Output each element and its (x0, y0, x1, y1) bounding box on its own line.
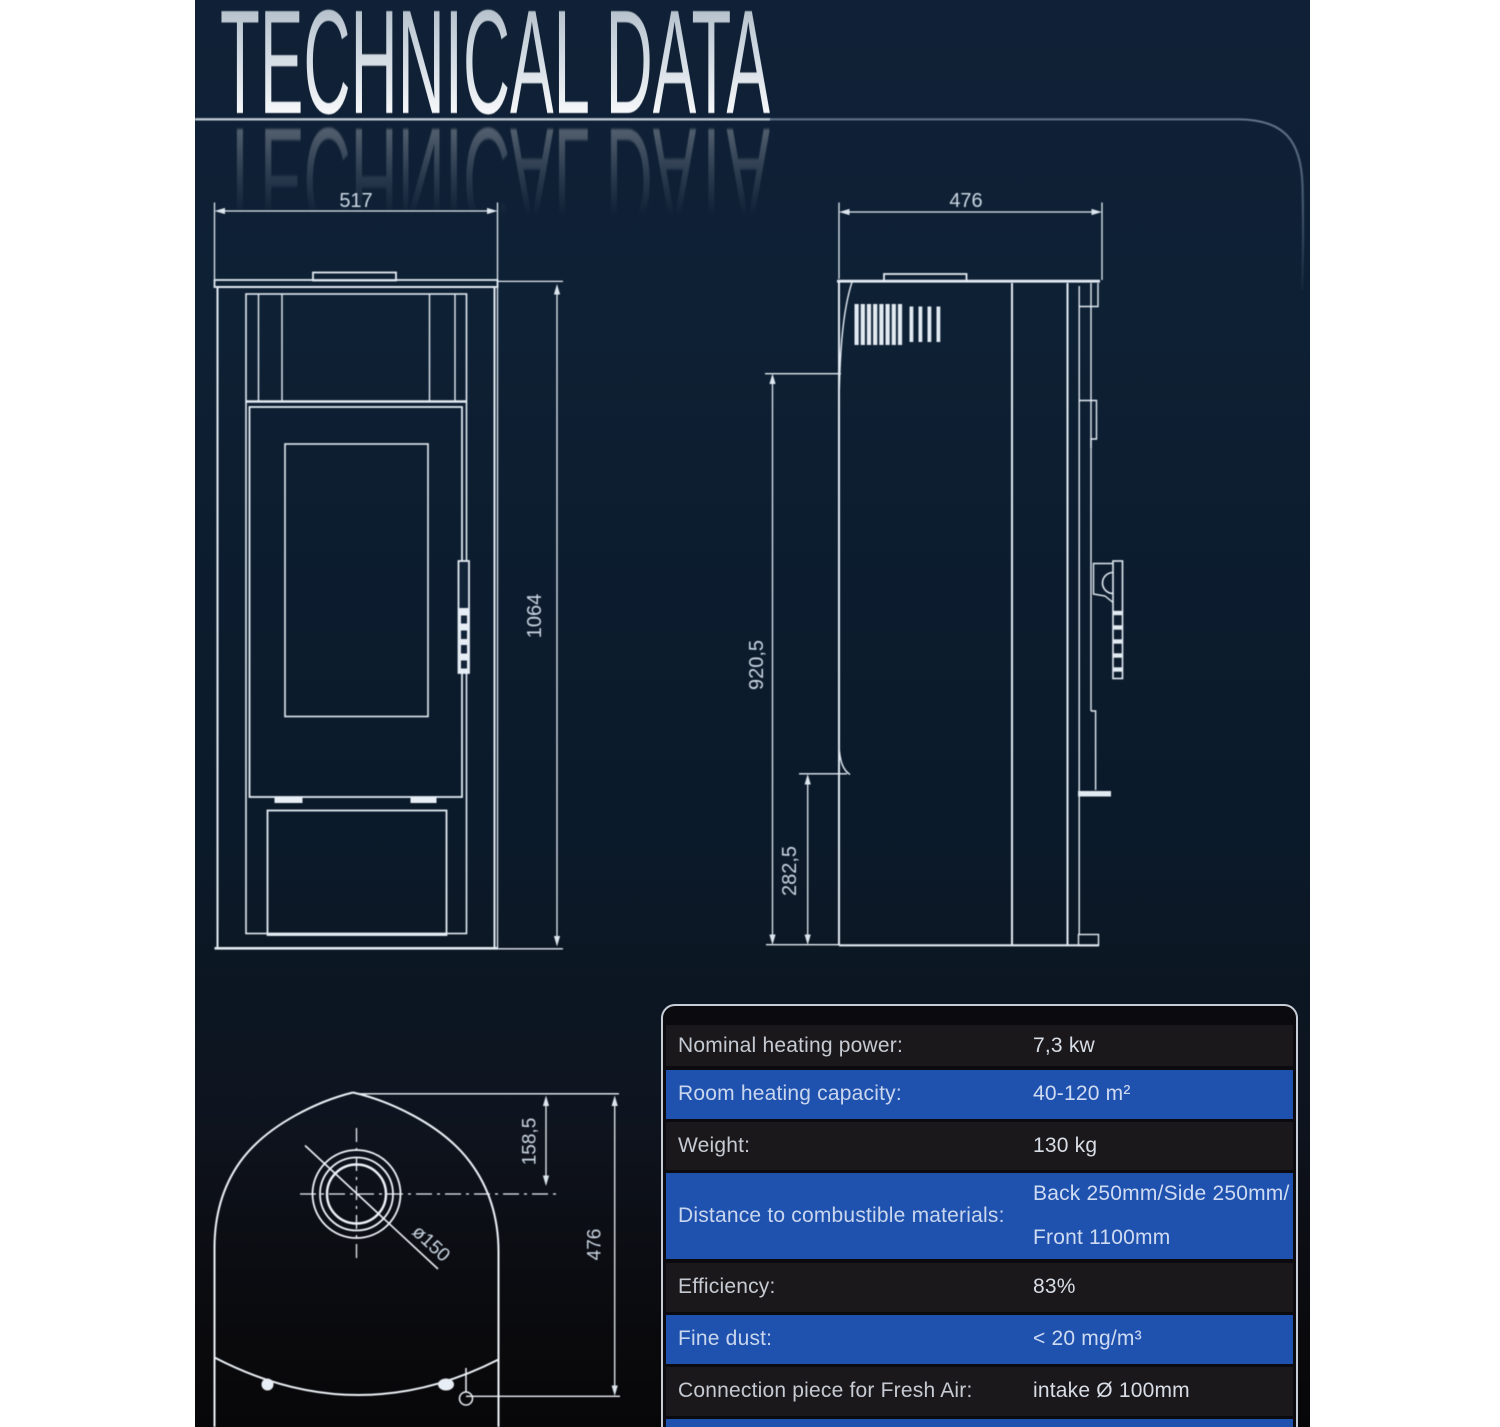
svg-text:476: 476 (585, 1229, 606, 1261)
svg-text:1064: 1064 (524, 594, 546, 639)
svg-text:158,5: 158,5 (520, 1118, 541, 1166)
svg-text:517: 517 (339, 190, 372, 212)
svg-text:920,5: 920,5 (746, 640, 768, 690)
svg-text:ø150: ø150 (408, 1222, 454, 1267)
svg-text:282,5: 282,5 (779, 846, 801, 896)
svg-text:476: 476 (949, 190, 982, 212)
